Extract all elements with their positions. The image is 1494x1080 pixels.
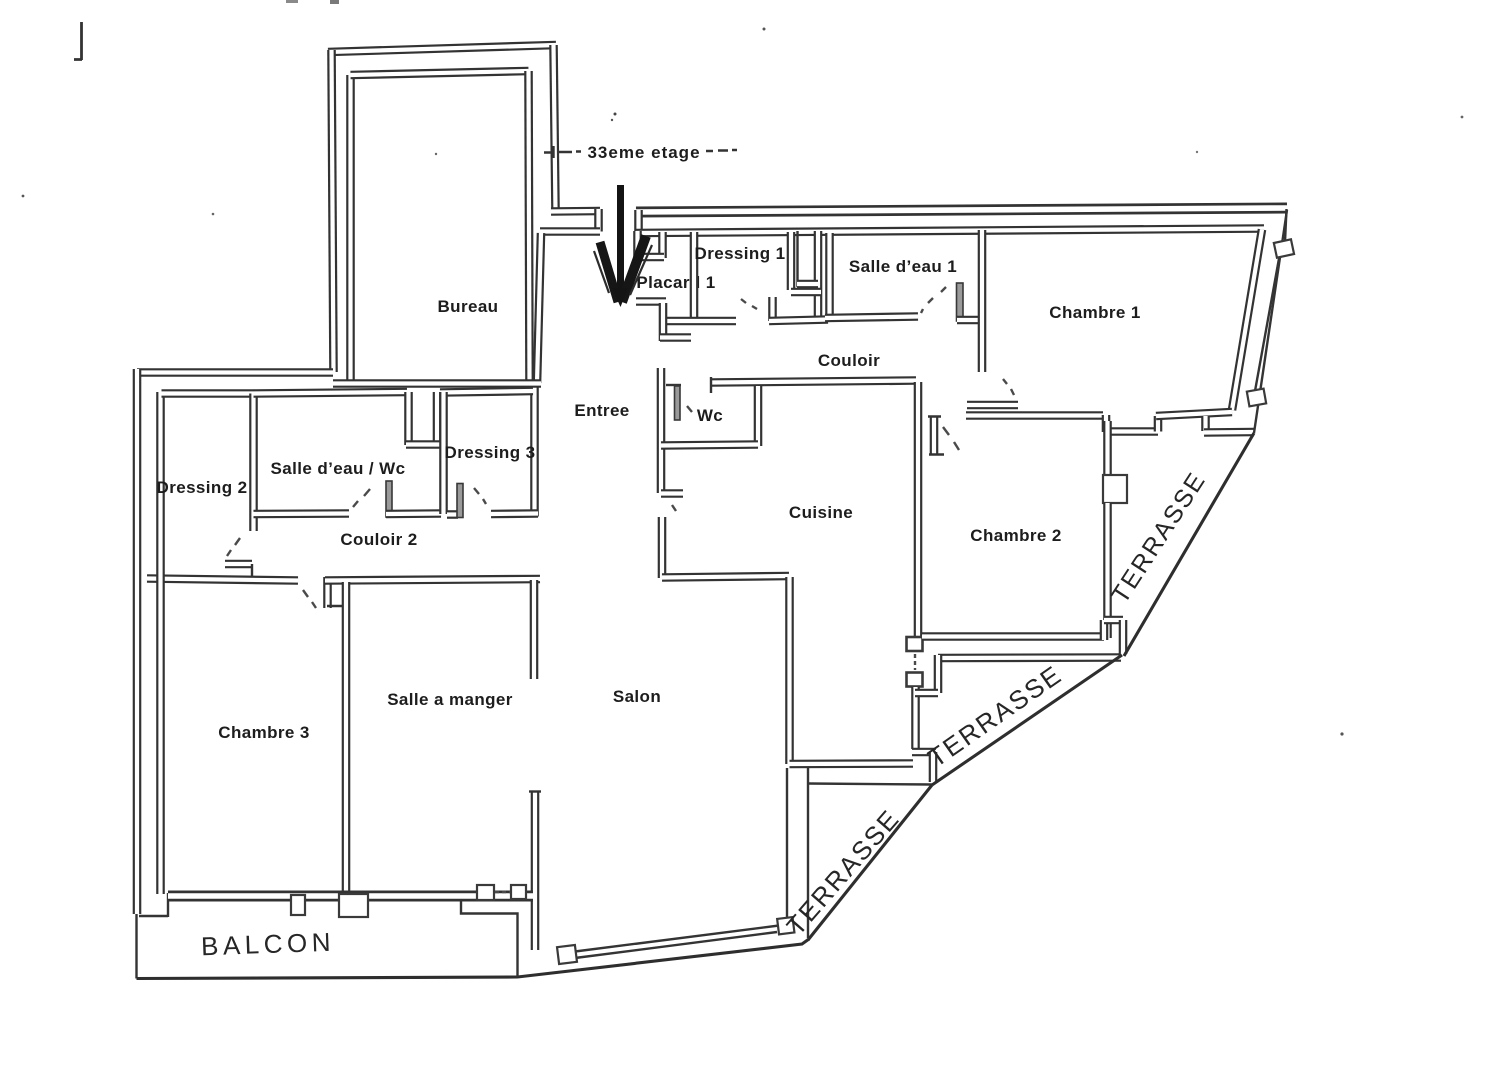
svg-text:Salle d’eau 1: Salle d’eau 1 — [849, 257, 957, 276]
svg-text:Couloir 2: Couloir 2 — [340, 530, 417, 549]
svg-text:Chambre 1: Chambre 1 — [1049, 303, 1140, 322]
svg-text:Dressing 2: Dressing 2 — [157, 478, 248, 497]
svg-text:Chambre 2: Chambre 2 — [970, 526, 1061, 545]
svg-text:Dressing 3: Dressing 3 — [445, 443, 536, 462]
svg-text:Dressing 1: Dressing 1 — [695, 244, 786, 263]
svg-text:Bureau: Bureau — [438, 297, 499, 316]
svg-text:Chambre 3: Chambre 3 — [218, 723, 309, 742]
svg-text:Salle d’eau / Wc: Salle d’eau / Wc — [271, 459, 406, 478]
svg-text:33eme etage: 33eme etage — [587, 143, 700, 162]
svg-text:Placard 1: Placard 1 — [636, 273, 715, 292]
svg-text:Entree: Entree — [574, 401, 629, 420]
svg-text:BALCON: BALCON — [201, 927, 336, 962]
svg-text:Couloir: Couloir — [818, 351, 880, 370]
svg-text:Wc: Wc — [697, 406, 723, 425]
svg-text:Cuisine: Cuisine — [789, 503, 853, 522]
svg-text:Salle a manger: Salle a manger — [387, 690, 513, 709]
svg-text:Salon: Salon — [613, 687, 661, 706]
